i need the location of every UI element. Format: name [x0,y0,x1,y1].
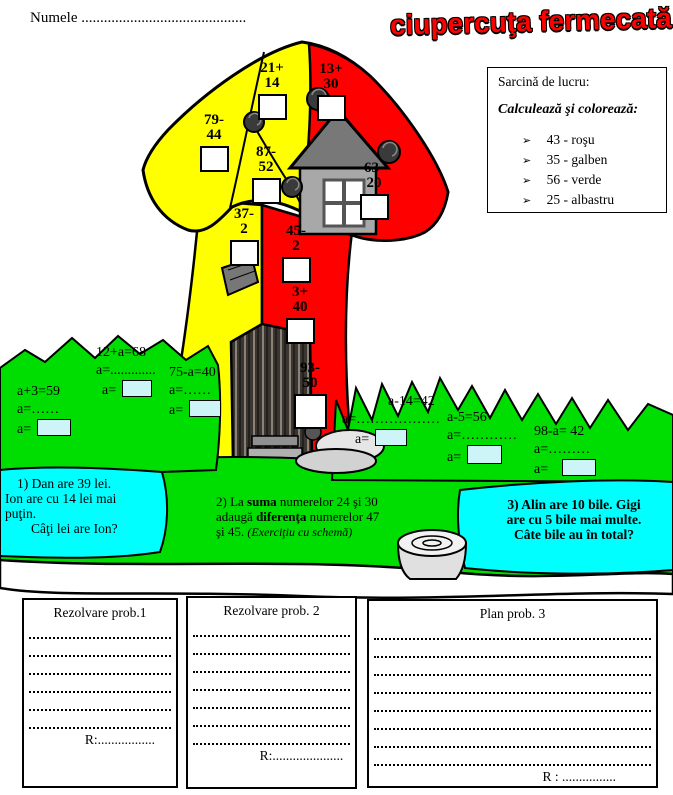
exercise-operand: 87- [244,145,288,160]
writing-line[interactable] [29,693,171,711]
stem-exercise: 45- 2 [274,224,318,283]
task-box: Sarcină de lucru: Calculează şi coloreaz… [487,67,667,213]
writing-line[interactable] [29,711,171,729]
exercise-operand: 3+ [278,285,322,300]
writing-line[interactable] [29,675,171,693]
stump-top [398,530,466,556]
cap-exercise: 13+ 30 [309,62,353,121]
equation-answer-box[interactable] [562,459,596,476]
equation-answer-line: a= [447,445,517,467]
writing-line[interactable] [374,694,651,712]
exercise-answer-box[interactable] [258,94,287,120]
writing-line[interactable] [374,730,651,748]
exercise-operand: 2 [274,239,318,254]
exercise-answer-box[interactable] [294,394,327,429]
page-title: ciupercuţa fermecată [390,2,672,41]
equation-answer-line: a= [169,400,221,420]
exercise-operand: 63- [352,161,396,176]
legend-item: ➢ 35 - galben [522,150,656,170]
exercise-operand: 14 [250,76,294,91]
exercise-answer-box[interactable] [252,178,281,204]
solution-box-title: Plan prob. 3 [369,606,656,622]
writing-line[interactable] [374,640,651,658]
writing-line[interactable] [193,637,350,655]
exercise-answer-box[interactable] [230,240,259,266]
exercise-answer-box[interactable] [360,194,389,220]
arrow-bullet-icon: ➢ [522,154,531,167]
exercise-answer-box[interactable] [317,95,346,121]
equation-answer-line: a= [17,419,71,439]
equation-text: 98-a= 42 [534,423,596,441]
exercise-operand: 13+ [309,62,353,77]
equation-work-line[interactable]: a=…… [169,382,221,400]
equation-text: a-14=42 [342,393,440,411]
equation-answer-line: a= [534,459,596,479]
cap-exercise: 21+ 14 [250,61,294,120]
exercise-operand: 44 [192,128,236,143]
writing-line[interactable] [374,622,651,640]
legend-item: ➢ 56 - verde [522,170,656,190]
name-fill-in[interactable]: ........................................… [81,10,246,26]
rock [296,449,376,473]
stem-exercise: 3+ 40 [278,285,322,344]
writing-line[interactable] [193,727,350,745]
arrow-bullet-icon: ➢ [522,194,531,207]
solution-box-2: Rezolvare prob. 2 R:....................… [186,596,357,789]
name-line[interactable]: Numele .................................… [30,10,246,27]
exercise-operand: 45- [274,224,318,239]
problem-1: 1) Dan are 39 lei. Ion are cu 14 lei mai… [5,476,135,536]
exercise-operand: 21+ [250,61,294,76]
problem-line: 2) La suma numerelor 24 şi 30 [216,494,408,509]
exercise-operand: 93- [288,361,332,376]
grass-equation: 12+a=68 a=............. a= [96,344,156,400]
writing-line[interactable] [374,676,651,694]
stem-exercise: 93- 50 [288,361,332,429]
legend-item: ➢ 43 - roşu [522,130,656,150]
equation-text: a+3=59 [17,383,71,401]
equation-answer-box[interactable] [467,445,502,464]
writing-line[interactable] [29,657,171,675]
exercise-operand: 37- [222,207,266,222]
exercise-operand: 50 [288,376,332,391]
arrow-bullet-icon: ➢ [522,174,531,187]
writing-line[interactable] [193,709,350,727]
writing-line[interactable] [193,655,350,673]
name-label: Numele [30,10,77,26]
equation-answer-box[interactable] [375,429,407,446]
equation-work-line[interactable]: a=……………… [342,411,440,429]
stream-band [0,560,673,598]
exercise-operand: 79- [192,113,236,128]
equation-answer-line: a= [96,380,156,400]
equation-answer-box[interactable] [37,419,71,436]
problem-line: şi 45. (Exerciţiu cu schemă) [216,524,408,540]
grass-equation: a-14=42 a=……………… a= [342,393,440,449]
legend-item: ➢ 25 - albastru [522,190,656,210]
result-line[interactable]: R:..................... [188,748,355,764]
door-step [252,436,298,446]
stump-body [398,543,466,579]
equation-work-line[interactable]: a=…… [17,401,71,419]
problem-line: puţin. [5,506,135,521]
result-line[interactable]: R : ................ [369,769,656,785]
writing-line[interactable] [193,691,350,709]
equation-work-line[interactable]: a=……… [534,441,596,459]
problem-line: Câte bile au în total? [486,527,662,542]
red-edge-shape [0,383,9,483]
problem-line: Câţi lei are Ion? [5,521,135,536]
legend-label: 56 - verde [547,172,602,187]
color-legend: ➢ 43 - roşu ➢ 35 - galben ➢ 56 - verde ➢… [498,130,656,210]
grass-equation: 98-a= 42 a=……… a= [534,423,596,479]
equation-text: 75-a=40 [169,364,221,382]
writing-line[interactable] [193,673,350,691]
task-subheading: Calculează şi colorează: [498,102,656,118]
problem-line: Ion are cu 14 lei mai [5,491,135,506]
problem-2: 2) La suma numerelor 24 şi 30 adaugă dif… [216,494,408,540]
equation-work-line[interactable]: a=………… [447,427,517,445]
exercise-operand: 20 [352,176,396,191]
cap-exercise: 63- 20 [352,161,396,220]
problem-line: 1) Dan are 39 lei. [5,476,135,491]
writing-line[interactable] [193,619,350,637]
legend-label: 25 - albastru [547,192,614,207]
writing-line[interactable] [374,712,651,730]
equation-answer-box[interactable] [122,380,152,397]
legend-label: 35 - galben [547,152,608,167]
task-heading: Sarcină de lucru: [498,74,656,90]
exercise-answer-box[interactable] [282,257,311,283]
grass-equation: a+3=59 a=…… a= [17,383,71,439]
arrow-bullet-icon: ➢ [522,134,531,147]
door-step [248,448,302,458]
writing-line[interactable] [374,748,651,766]
cap-yellow [143,42,448,240]
worksheet-page: Numele .................................… [0,0,673,795]
equation-text: 12+a=68 [96,344,156,362]
solution-box-1: Rezolvare prob.1 R:................. [22,598,178,788]
cap-exercise: 87- 52 [244,145,288,204]
grass-equation: 75-a=40 a=…… a= [169,364,221,420]
exercise-operand: 40 [278,300,322,315]
exercise-answer-box[interactable] [286,318,315,344]
solution-box-title: Rezolvare prob. 2 [188,603,355,619]
problem-line: adaugă diferenţa numerelor 47 [216,509,408,524]
plan-box-3: Plan prob. 3 R : ................ [367,599,658,788]
cap-exercise: 79- 44 [192,113,236,172]
equation-work-line[interactable]: a=............. [96,362,156,380]
solution-box-title: Rezolvare prob.1 [24,605,176,621]
problem-3: 3) Alin are 10 bile. Gigi are cu 5 bile … [486,497,662,542]
writing-line[interactable] [29,639,171,657]
result-line[interactable]: R:................. [24,732,176,748]
equation-answer-box[interactable] [189,400,221,417]
problem-line: 3) Alin are 10 bile. Gigi [486,497,662,512]
problem-note: (Exerciţiu cu schemă) [247,525,352,539]
grass-equation: a-5=56 a=………… a= [447,409,517,467]
equation-answer-line: a= [342,429,440,449]
legend-label: 43 - roşu [547,132,595,147]
exercise-answer-box[interactable] [200,146,229,172]
equation-text: a-5=56 [447,409,517,427]
writing-line[interactable] [374,658,651,676]
exercise-operand: 52 [244,160,288,175]
exercise-operand: 30 [309,77,353,92]
stem-exercise: 37- 2 [222,207,266,266]
writing-line[interactable] [29,621,171,639]
exercise-operand: 2 [222,222,266,237]
problem-line: are cu 5 bile mai multe. [486,512,662,527]
